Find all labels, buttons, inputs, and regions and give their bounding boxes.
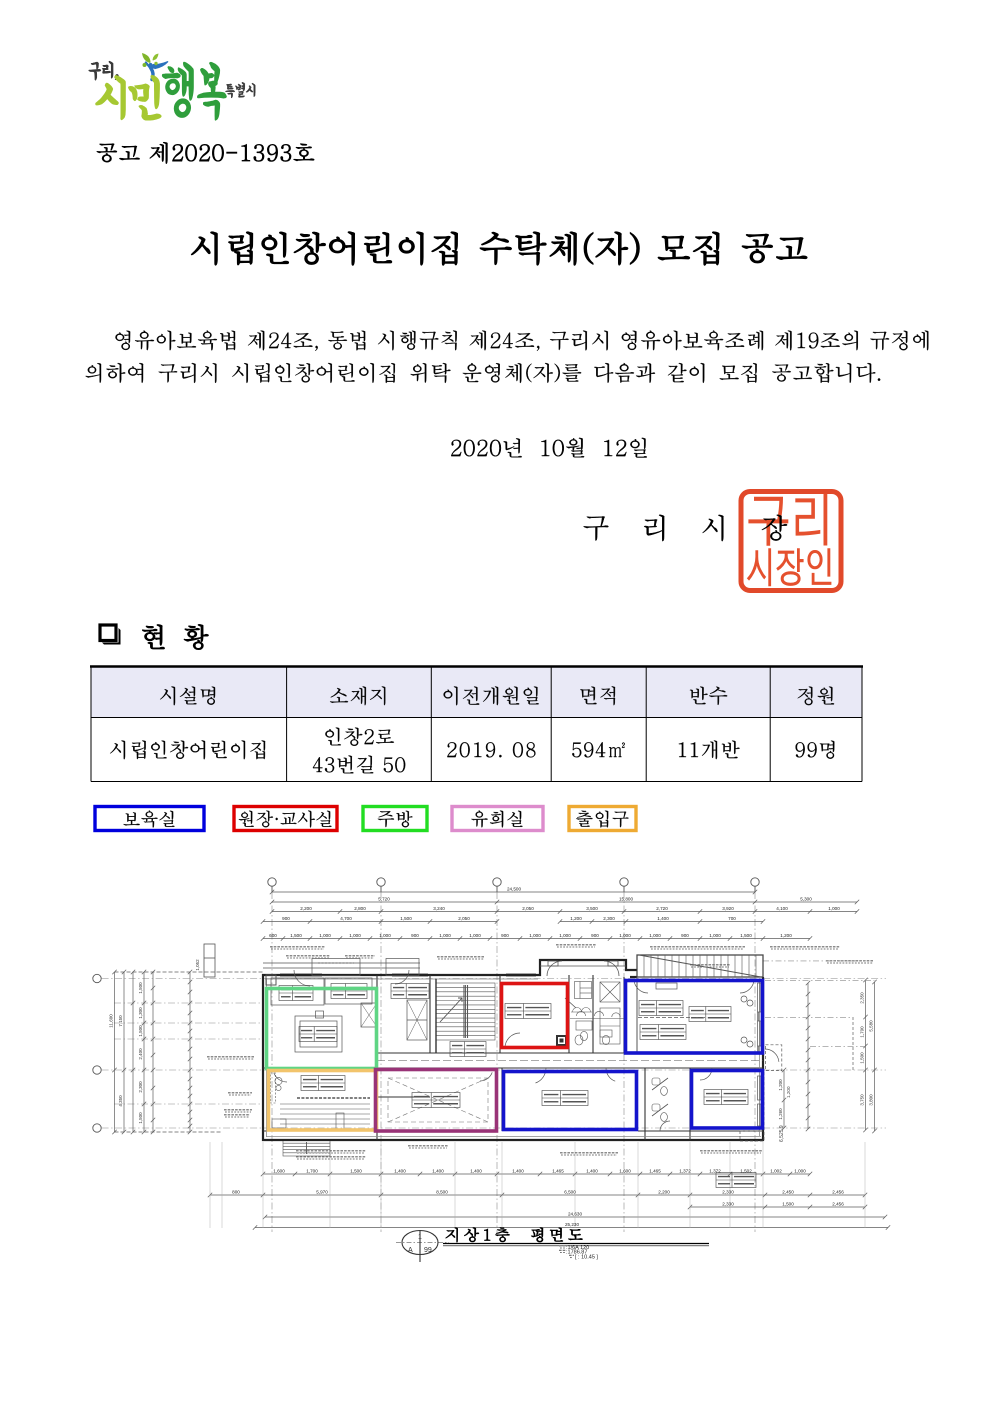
svg-text:2,330: 2,330 — [722, 1190, 734, 1195]
svg-text:5,300: 5,300 — [800, 897, 812, 902]
svg-text:1,200: 1,200 — [786, 1086, 791, 1098]
svg-text:2,456: 2,456 — [832, 1190, 844, 1195]
svg-text:1,500: 1,500 — [860, 1052, 865, 1064]
svg-text:1: 1 — [418, 1234, 422, 1241]
svg-text:800: 800 — [232, 1190, 240, 1195]
svg-text:900: 900 — [411, 933, 419, 938]
svg-text:1,000: 1,000 — [349, 933, 361, 938]
svg-text:1,500: 1,500 — [400, 916, 412, 921]
svg-text:1,500: 1,500 — [138, 1025, 143, 1037]
svg-text:900: 900 — [591, 933, 599, 938]
svg-text:5,580: 5,580 — [869, 1020, 874, 1032]
svg-text:1,465: 1,465 — [649, 1169, 661, 1174]
svg-text:1,000: 1,000 — [439, 933, 451, 938]
svg-text:600: 600 — [269, 933, 277, 938]
svg-text:1,000: 1,000 — [559, 933, 571, 938]
svg-text:1,000: 1,000 — [319, 933, 331, 938]
svg-text:3,750: 3,750 — [860, 1094, 865, 1106]
svg-text:900: 900 — [282, 916, 290, 921]
svg-text:A: A — [408, 1247, 413, 1254]
svg-text:24,630: 24,630 — [568, 1212, 582, 1217]
svg-text:2,350: 2,350 — [860, 992, 865, 1004]
svg-text:1,465: 1,465 — [552, 1169, 564, 1174]
svg-text:1,500: 1,500 — [138, 1112, 143, 1124]
svg-text:1,400: 1,400 — [657, 916, 669, 921]
svg-text:1,000: 1,000 — [649, 933, 661, 938]
svg-text:1,500: 1,500 — [782, 1202, 794, 1207]
svg-text:1,400: 1,400 — [586, 1169, 598, 1174]
svg-text:4,100: 4,100 — [776, 906, 788, 911]
svg-text:2,400: 2,400 — [138, 1048, 143, 1060]
svg-text:1,000: 1,000 — [529, 933, 541, 938]
svg-text:1,600: 1,600 — [273, 1169, 285, 1174]
svg-text:3,240: 3,240 — [433, 906, 445, 911]
svg-text:5,970: 5,970 — [316, 1190, 328, 1195]
svg-text:25,230: 25,230 — [565, 1222, 579, 1227]
svg-text:5,720: 5,720 — [378, 897, 390, 902]
svg-text:1,400: 1,400 — [432, 1169, 444, 1174]
svg-text:2,330: 2,330 — [722, 1202, 734, 1207]
svg-text:3,500: 3,500 — [586, 906, 598, 911]
svg-text:3,920: 3,920 — [722, 906, 734, 911]
svg-text:1,502: 1,502 — [740, 1169, 752, 1174]
svg-text:1,200: 1,200 — [780, 933, 792, 938]
svg-text:1,200: 1,200 — [570, 916, 582, 921]
svg-text:7,150: 7,150 — [118, 1015, 123, 1027]
svg-text:1,052: 1,052 — [195, 959, 200, 971]
svg-text:4,700: 4,700 — [340, 916, 352, 921]
svg-text:2,300: 2,300 — [138, 1081, 143, 1093]
svg-text:1,002: 1,002 — [770, 1169, 782, 1174]
svg-text:2,050: 2,050 — [458, 916, 470, 921]
svg-text:1,372: 1,372 — [709, 1169, 721, 1174]
svg-text:1,000: 1,000 — [619, 933, 631, 938]
svg-text:700: 700 — [728, 916, 736, 921]
svg-text:15,800: 15,800 — [619, 897, 633, 902]
svg-text:1,500: 1,500 — [350, 1169, 362, 1174]
svg-text:2,720: 2,720 — [656, 906, 668, 911]
svg-text:2,200: 2,200 — [300, 906, 312, 911]
svg-text:1,000: 1,000 — [828, 906, 840, 911]
svg-text:8,500: 8,500 — [436, 1190, 448, 1195]
svg-text:2,456: 2,456 — [832, 1202, 844, 1207]
svg-text:1,790: 1,790 — [860, 1026, 865, 1038]
svg-text:6,500: 6,500 — [564, 1190, 576, 1195]
svg-text:2,300: 2,300 — [603, 916, 615, 921]
svg-text:6,525.9: 6,525.9 — [779, 1125, 785, 1142]
svg-text:900: 900 — [681, 933, 689, 938]
svg-text:1,300: 1,300 — [138, 1007, 143, 1019]
svg-text:24,500: 24,500 — [507, 887, 521, 892]
svg-text:1,500: 1,500 — [290, 933, 302, 938]
svg-text:1,000: 1,000 — [709, 933, 721, 938]
svg-text:1,260: 1,260 — [778, 1108, 783, 1120]
svg-text:1,000: 1,000 — [794, 1169, 806, 1174]
svg-text:[ : 10.45 ]: [ : 10.45 ] — [575, 1255, 598, 1261]
svg-text:1,000: 1,000 — [379, 933, 391, 938]
svg-text:1,400: 1,400 — [512, 1169, 524, 1174]
svg-text:1,400: 1,400 — [394, 1169, 406, 1174]
svg-text:1,372: 1,372 — [679, 1169, 691, 1174]
svg-text:1,500: 1,500 — [740, 933, 752, 938]
svg-text:1,500: 1,500 — [138, 982, 143, 994]
svg-text:900: 900 — [501, 933, 509, 938]
svg-text:1,400: 1,400 — [470, 1169, 482, 1174]
svg-text:2,200: 2,200 — [658, 1190, 670, 1195]
svg-text:99: 99 — [424, 1247, 432, 1254]
svg-text:1,600: 1,600 — [619, 1169, 631, 1174]
svg-text:1,700: 1,700 — [306, 1169, 318, 1174]
svg-text:3,800: 3,800 — [869, 1094, 874, 1106]
svg-text:4,350: 4,350 — [118, 1095, 123, 1107]
svg-text:2,050: 2,050 — [522, 906, 534, 911]
svg-text:11,600: 11,600 — [109, 1014, 114, 1028]
svg-text:2,450: 2,450 — [782, 1190, 794, 1195]
svg-text:1,200: 1,200 — [778, 1079, 783, 1091]
svg-text:1,000: 1,000 — [469, 933, 481, 938]
svg-text:2,800: 2,800 — [354, 906, 366, 911]
